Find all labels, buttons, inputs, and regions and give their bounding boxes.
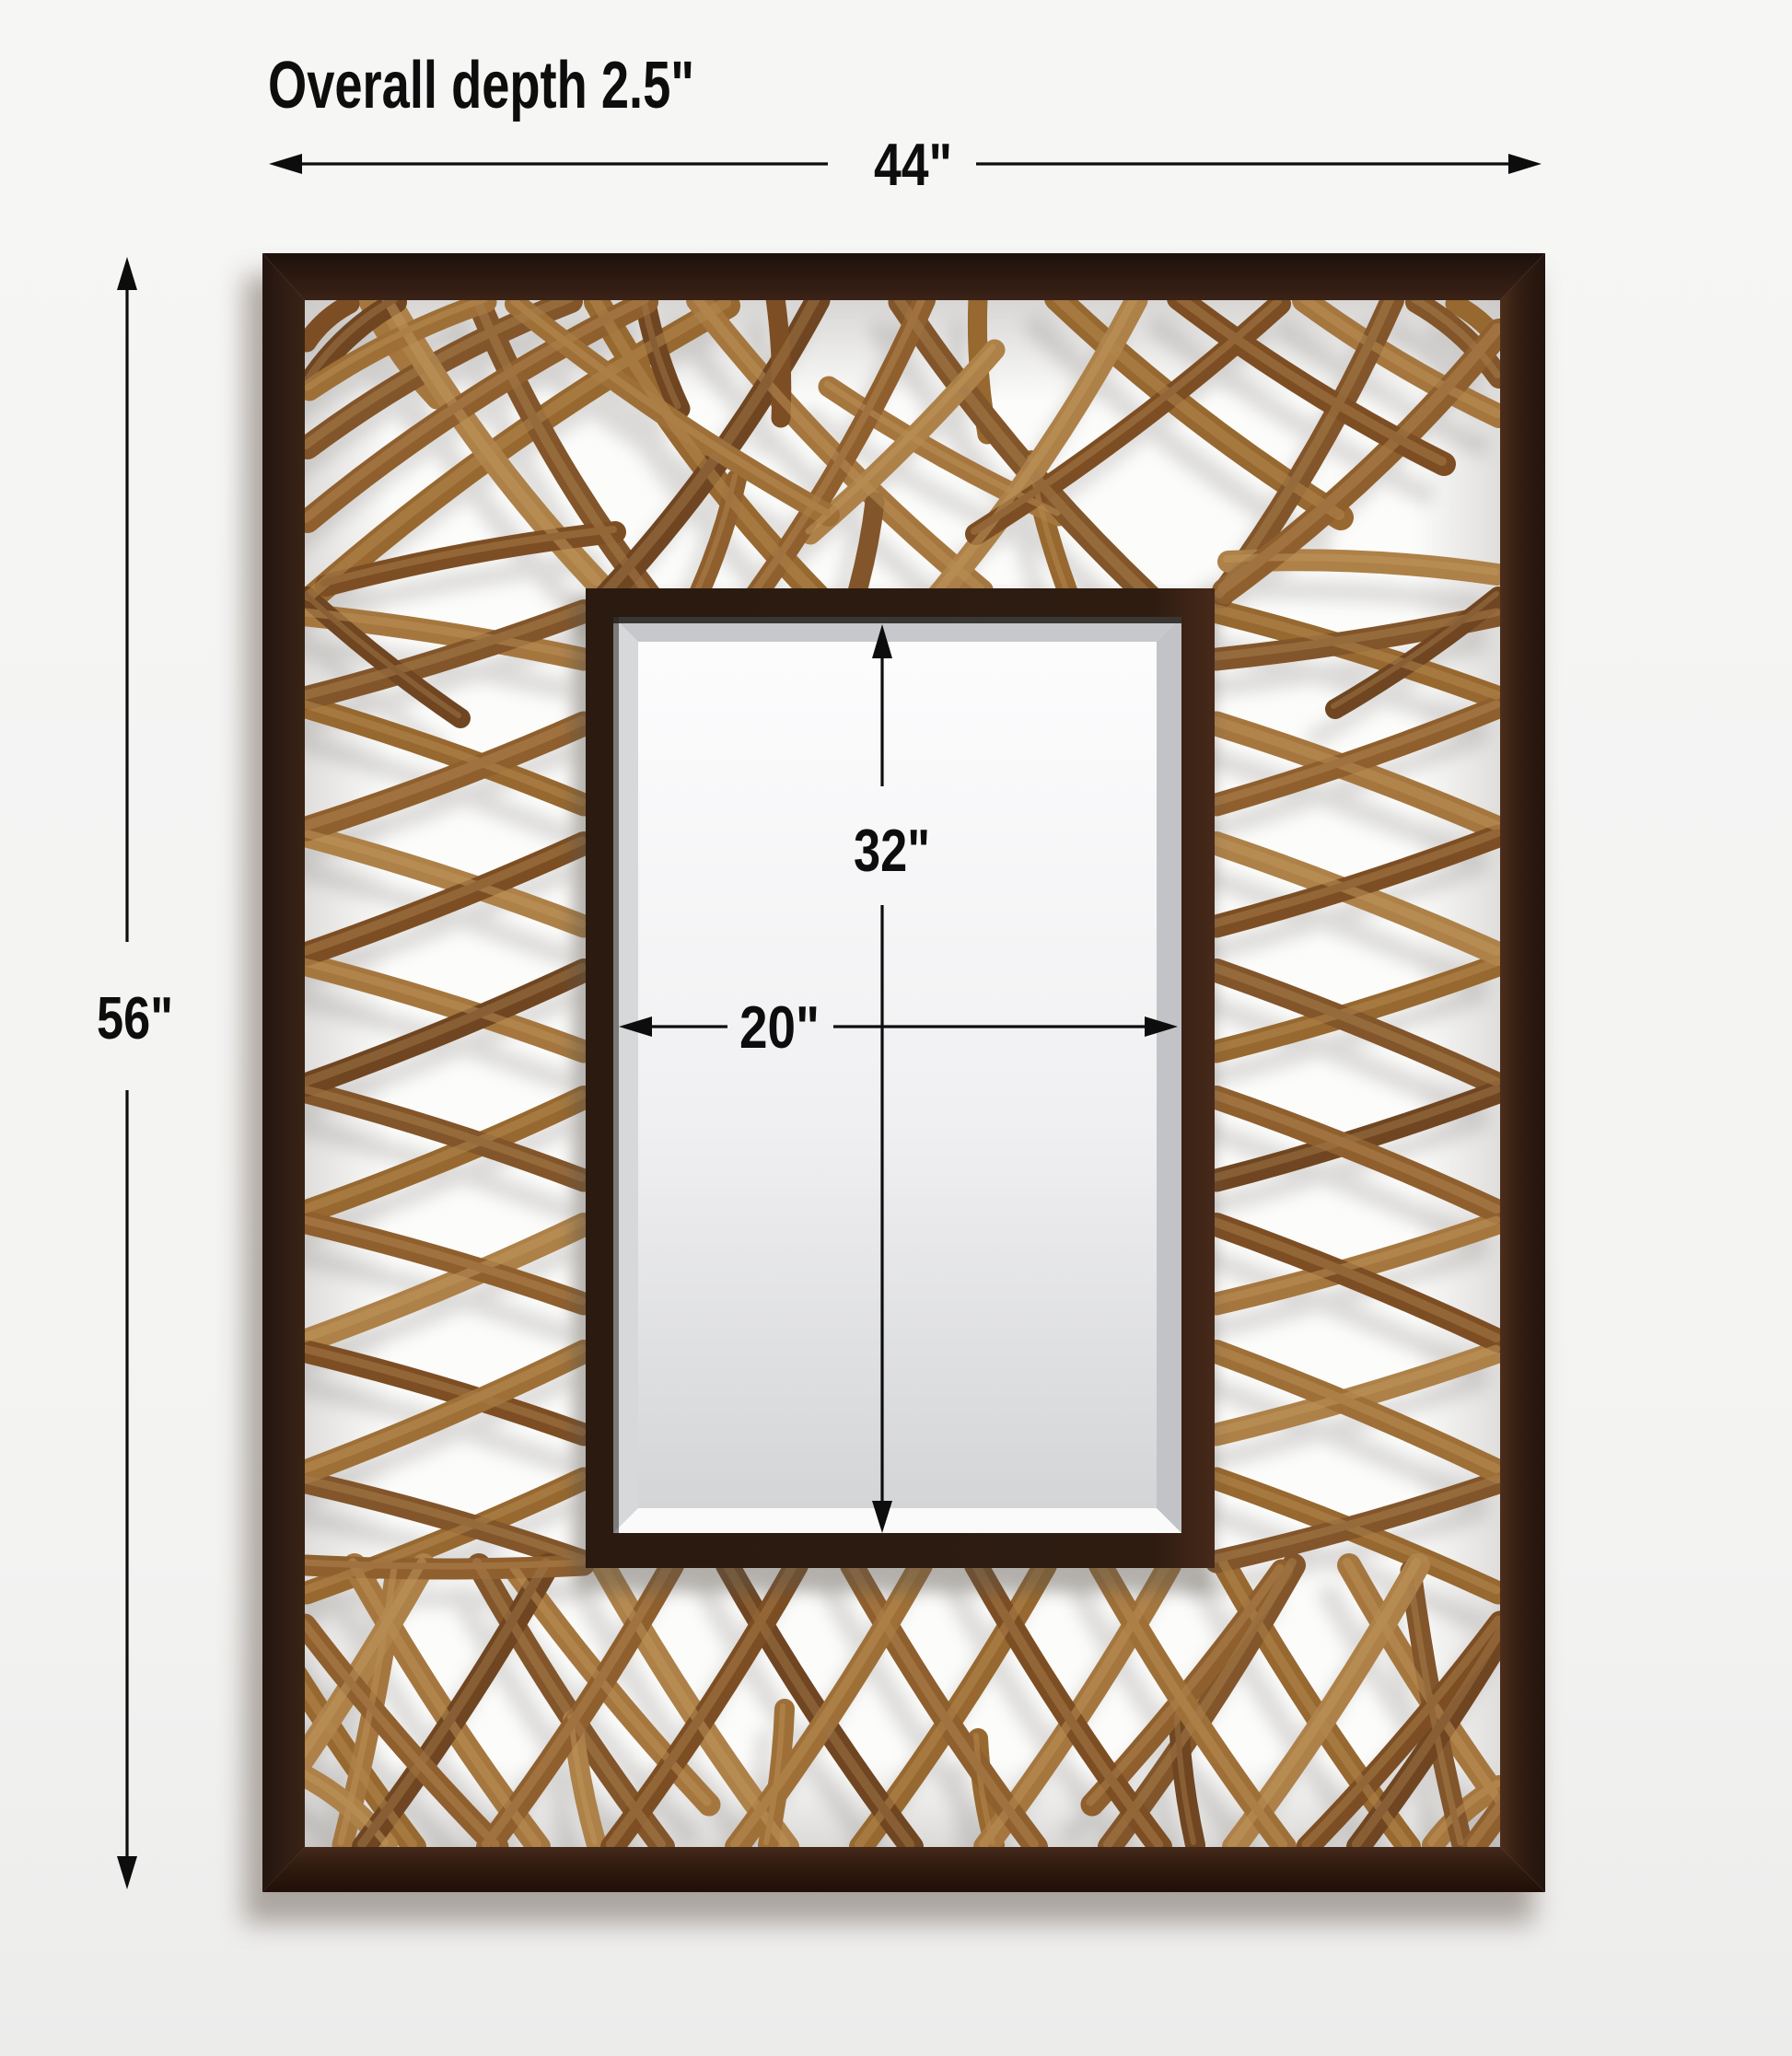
svg-text:56": 56" — [97, 984, 173, 1051]
svg-text:32": 32" — [854, 817, 930, 884]
svg-text:20": 20" — [739, 993, 820, 1061]
svg-text:44": 44" — [874, 131, 952, 198]
svg-text:Overall depth 2.5": Overall depth 2.5" — [268, 49, 694, 122]
